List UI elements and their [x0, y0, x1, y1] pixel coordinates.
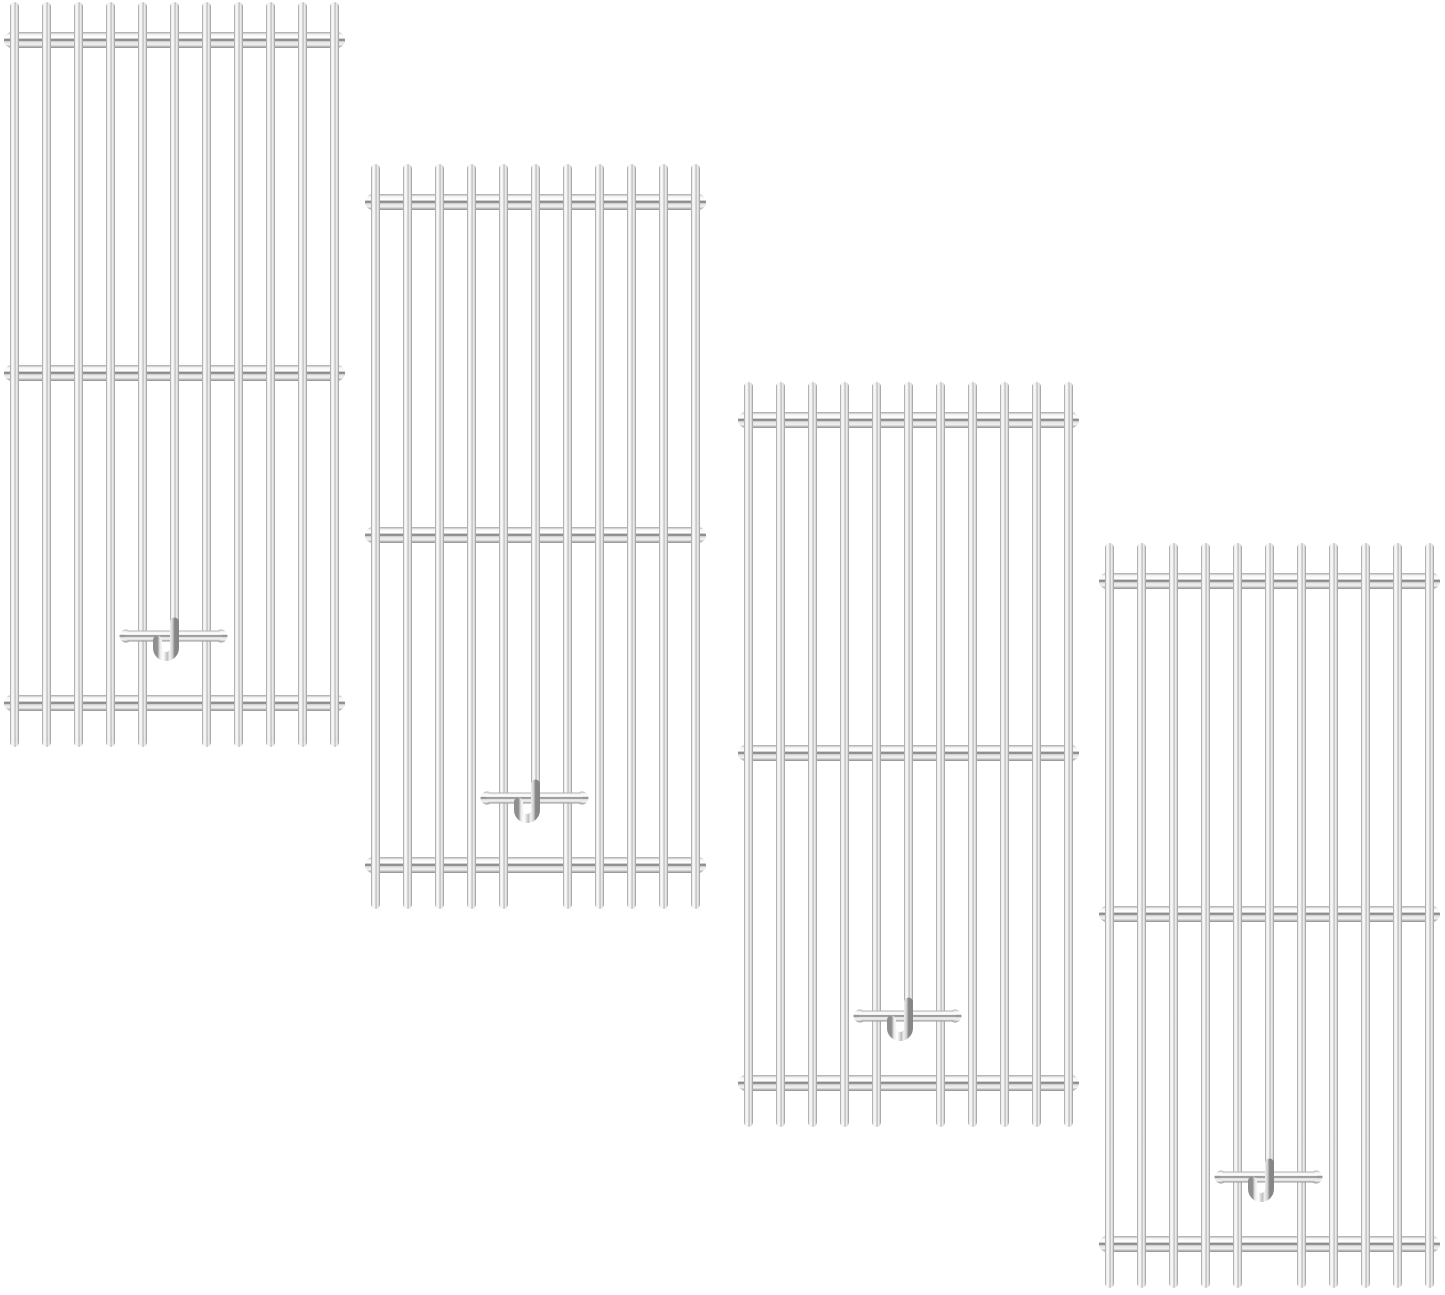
center-hook-rod: [158, 2, 180, 657]
grill-grate-4: [1099, 543, 1440, 1291]
grill-grate-3: [738, 382, 1079, 1130]
center-hook-rod: [519, 164, 541, 819]
center-hook-rod: [1253, 543, 1275, 1198]
grill-grate-1: [4, 2, 345, 750]
product-photo: [0, 0, 1445, 1295]
grill-grate-2: [365, 164, 706, 912]
center-hook-rod: [892, 382, 914, 1037]
